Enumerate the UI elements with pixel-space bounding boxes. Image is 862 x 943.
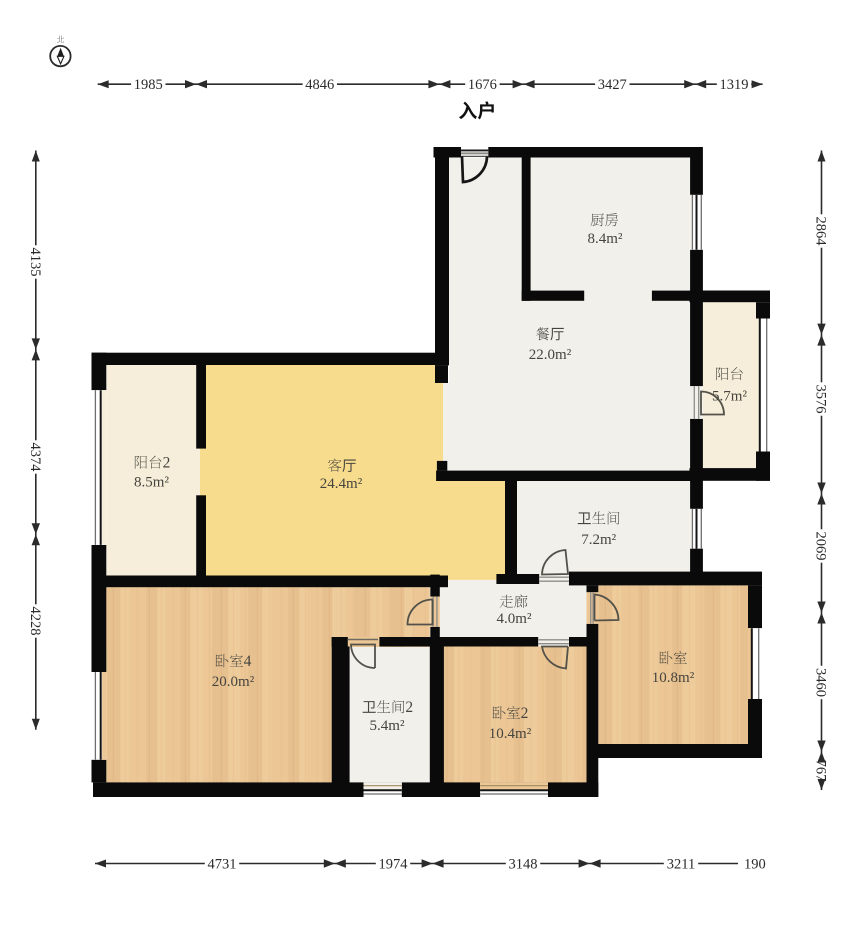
svg-text:4228: 4228	[27, 607, 43, 636]
svg-text:3211: 3211	[667, 856, 695, 872]
svg-text:3576: 3576	[813, 385, 829, 414]
svg-text:5.4m²: 5.4m²	[370, 718, 405, 734]
svg-text:2: 2	[163, 455, 171, 472]
svg-text:2864: 2864	[813, 217, 829, 247]
svg-text:22.0m²: 22.0m²	[529, 347, 572, 363]
svg-text:8.5m²: 8.5m²	[134, 474, 169, 490]
svg-text:4135: 4135	[27, 248, 43, 277]
svg-text:10.8m²: 10.8m²	[652, 670, 695, 686]
svg-text:3148: 3148	[509, 856, 538, 872]
svg-text:20.0m²: 20.0m²	[212, 674, 255, 690]
svg-text:4374: 4374	[27, 443, 43, 473]
svg-text:2: 2	[521, 705, 529, 722]
svg-text:1676: 1676	[468, 77, 497, 93]
svg-text:10.4m²: 10.4m²	[489, 726, 532, 742]
svg-text:4731: 4731	[208, 856, 237, 872]
svg-text:1974: 1974	[379, 856, 409, 872]
svg-text:2: 2	[405, 699, 413, 716]
svg-text:3427: 3427	[598, 77, 627, 93]
svg-text:4.0m²: 4.0m²	[497, 611, 532, 627]
svg-text:767: 767	[813, 760, 829, 782]
svg-text:8.4m²: 8.4m²	[588, 231, 623, 247]
svg-text:4846: 4846	[305, 77, 334, 93]
svg-text:190: 190	[744, 856, 766, 872]
svg-text:3460: 3460	[813, 668, 829, 697]
svg-text:5.7m²: 5.7m²	[712, 388, 747, 404]
svg-text:1319: 1319	[720, 77, 749, 93]
svg-text:24.4m²: 24.4m²	[320, 476, 363, 492]
svg-text:2069: 2069	[813, 532, 829, 561]
svg-text:4: 4	[244, 653, 252, 670]
svg-text:7.2m²: 7.2m²	[581, 532, 616, 548]
svg-text:1985: 1985	[134, 77, 163, 93]
